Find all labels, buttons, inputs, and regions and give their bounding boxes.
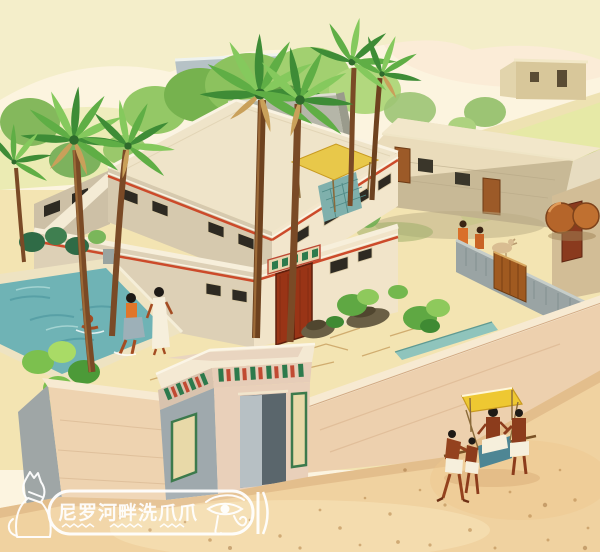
gate-panel-right <box>292 393 306 467</box>
watermark-text: 尼罗河畔洗爪爪 <box>58 501 198 524</box>
gatehouse <box>156 344 315 500</box>
egyptian-villa-illustration: 尼罗河畔洗爪爪 <box>0 0 600 552</box>
pottery-jars <box>546 203 599 241</box>
gate-panel-left <box>172 414 196 481</box>
far-house <box>516 60 586 100</box>
